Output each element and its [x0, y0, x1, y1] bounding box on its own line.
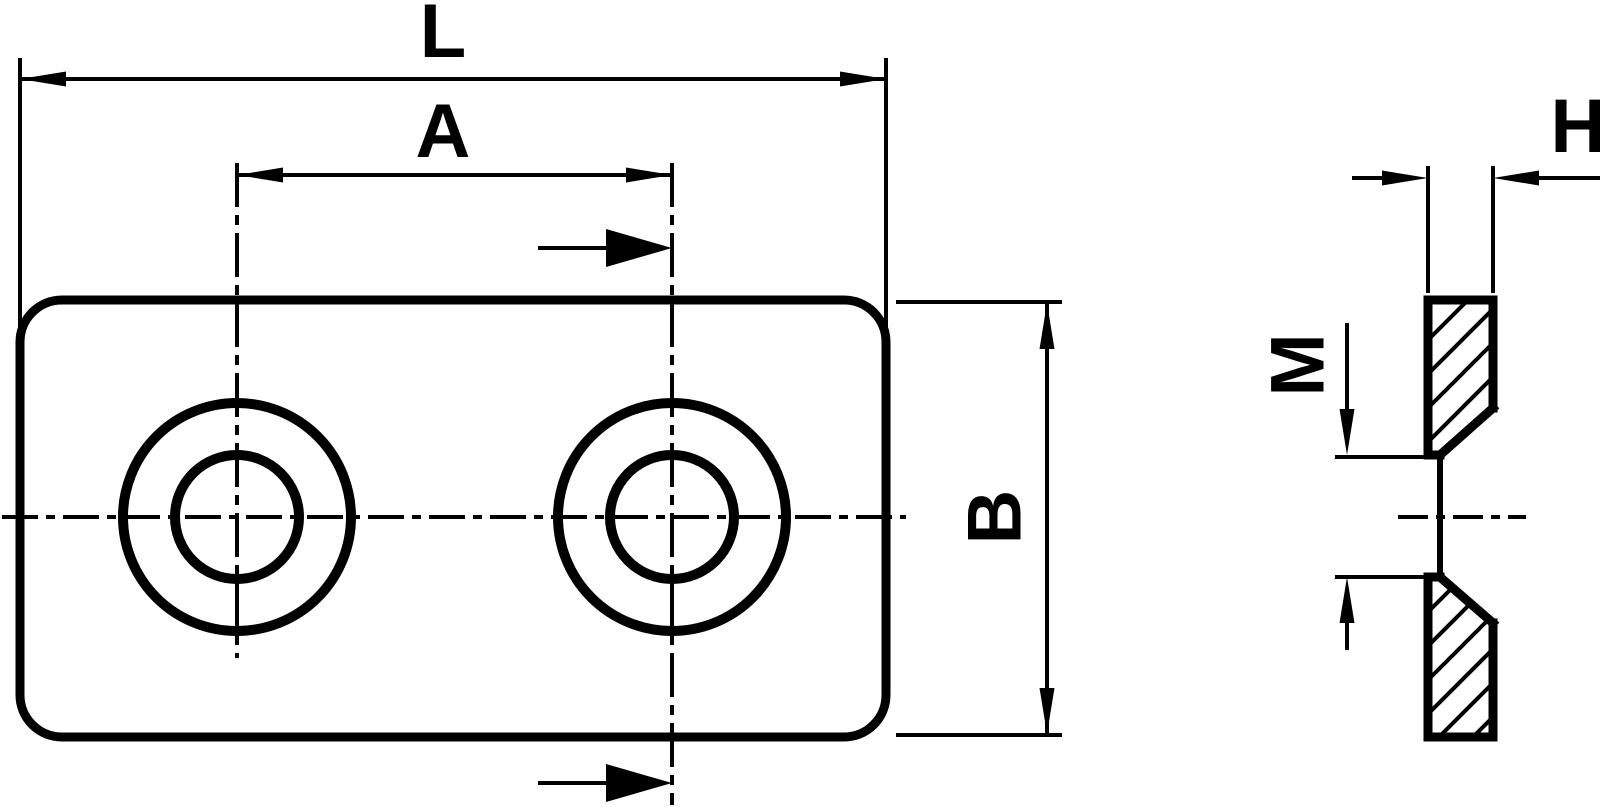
- dim-L-arrow-left-icon: [20, 72, 66, 87]
- dim-A-arrow-left-icon: [237, 168, 283, 183]
- dim-H-arrow-left-icon: [1382, 171, 1428, 186]
- front-view: L A B: [2, 0, 1062, 805]
- dim-H-arrow-right-icon: [1493, 171, 1539, 186]
- drawing-canvas: L A B H: [0, 0, 1600, 807]
- dim-B-label: B: [953, 490, 1038, 545]
- axis-pointer-bottom-arrow-icon: [606, 764, 672, 802]
- dim-L-arrow-right-icon: [840, 72, 886, 87]
- dim-B-arrow-top-icon: [1040, 303, 1055, 349]
- dim-B-arrow-bottom-icon: [1040, 688, 1055, 734]
- dim-A-arrow-right-icon: [626, 168, 672, 183]
- dim-M-label: M: [1256, 333, 1341, 396]
- dim-A-label: A: [416, 89, 471, 174]
- dim-H-label: H: [1551, 84, 1600, 169]
- section-hatch-lower: [1432, 580, 1489, 733]
- dim-M-arrow-up-icon: [1340, 577, 1355, 623]
- side-section-view: H M: [1256, 84, 1600, 737]
- axis-pointer-top-arrow-icon: [606, 229, 672, 267]
- dim-L-label: L: [420, 0, 466, 74]
- dim-M-arrow-down-icon: [1340, 409, 1355, 455]
- technical-drawing: L A B H: [0, 0, 1600, 807]
- section-hatch-upper: [1432, 304, 1489, 452]
